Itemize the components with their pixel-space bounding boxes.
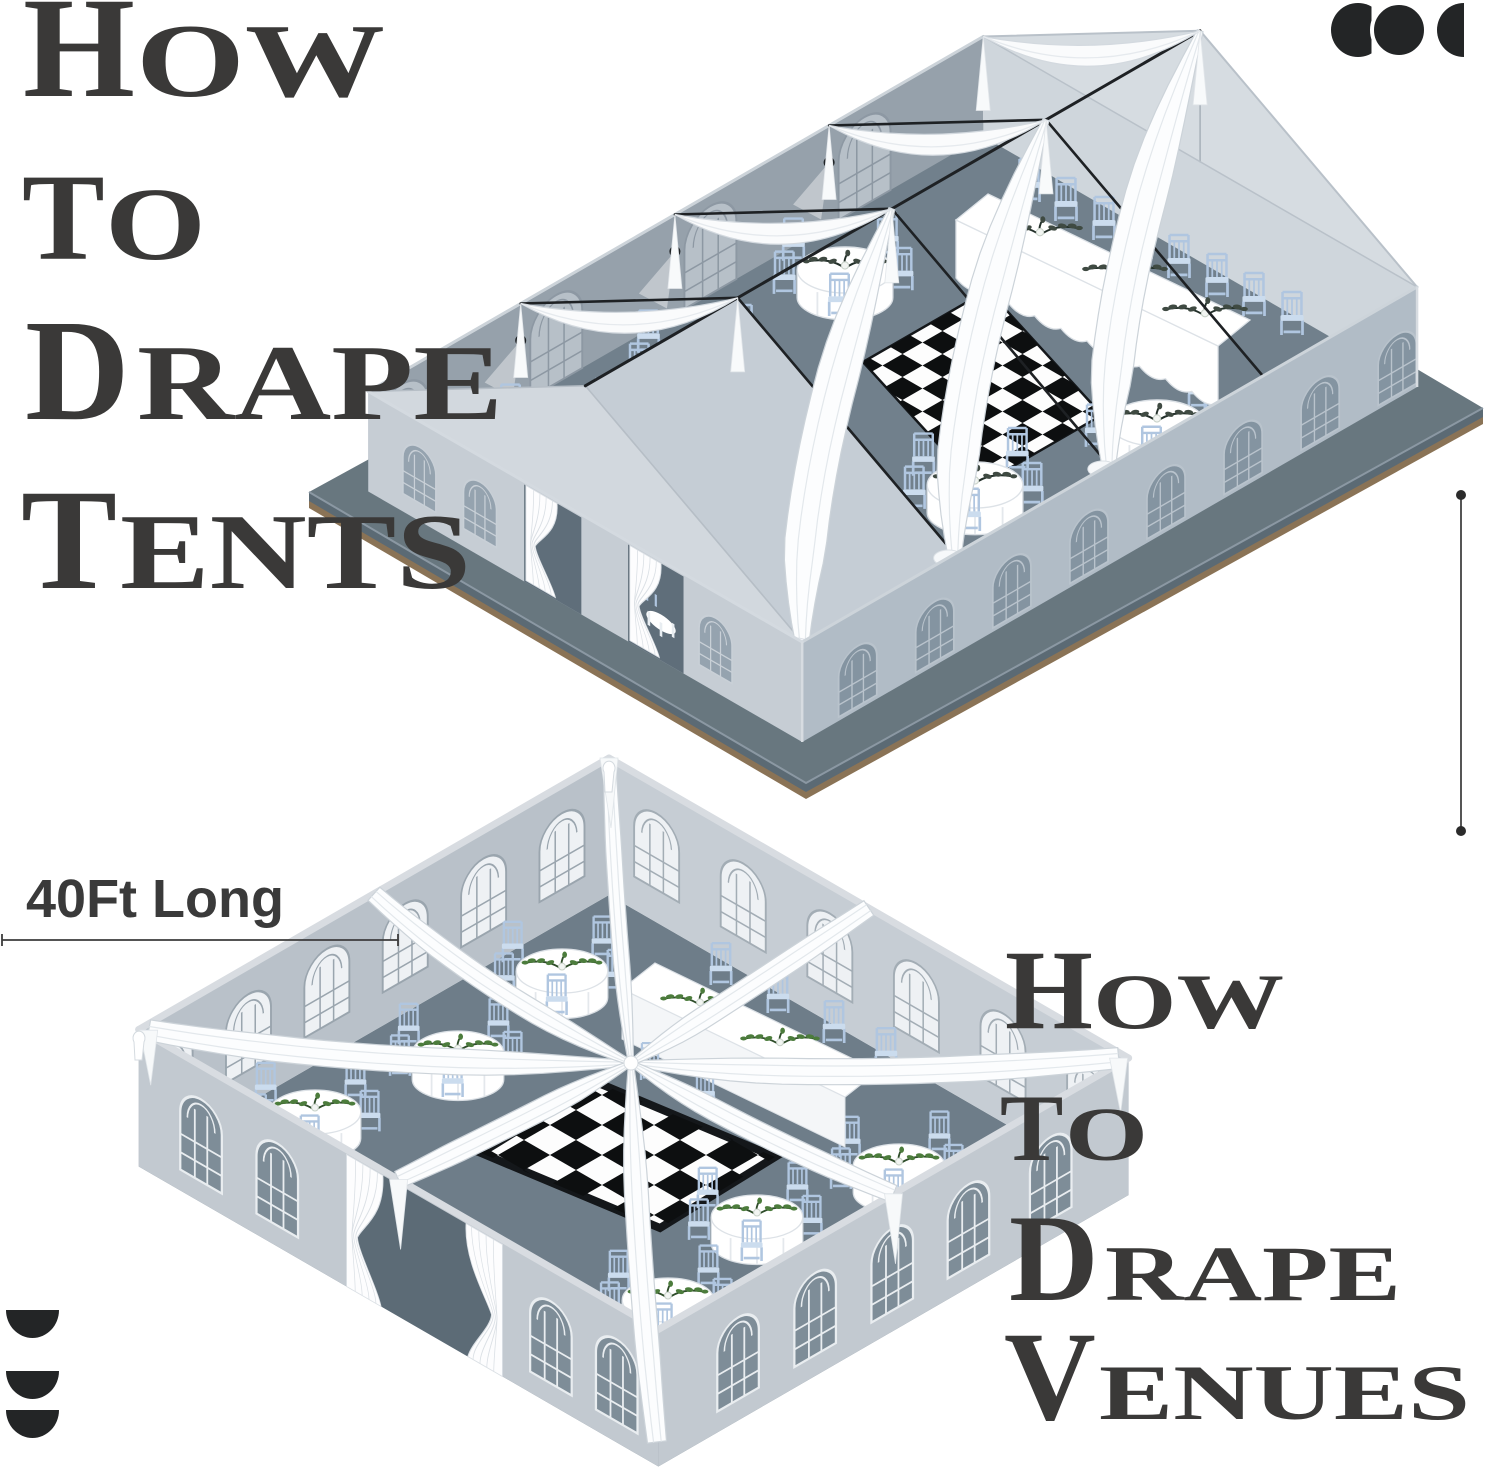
svg-text:T: T (22, 149, 105, 286)
svg-text:H: H (1005, 928, 1093, 1053)
svg-text:OW: OW (1093, 958, 1284, 1045)
svg-text:40Ft Long: 40Ft Long (26, 869, 284, 929)
svg-text:D: D (25, 291, 130, 451)
svg-text:RAPE: RAPE (1105, 1230, 1401, 1317)
svg-text:ENUES: ENUES (1099, 1349, 1470, 1436)
svg-text:O: O (105, 167, 206, 282)
svg-text:T: T (1000, 1075, 1063, 1181)
svg-text:V: V (1004, 1307, 1096, 1447)
svg-text:ENTS: ENTS (120, 493, 471, 612)
svg-text:T: T (21, 461, 117, 620)
svg-text:RAPE: RAPE (137, 324, 503, 443)
svg-text:O: O (1065, 1093, 1148, 1177)
svg-text:H: H (23, 0, 135, 128)
svg-text:OW: OW (136, 2, 385, 119)
